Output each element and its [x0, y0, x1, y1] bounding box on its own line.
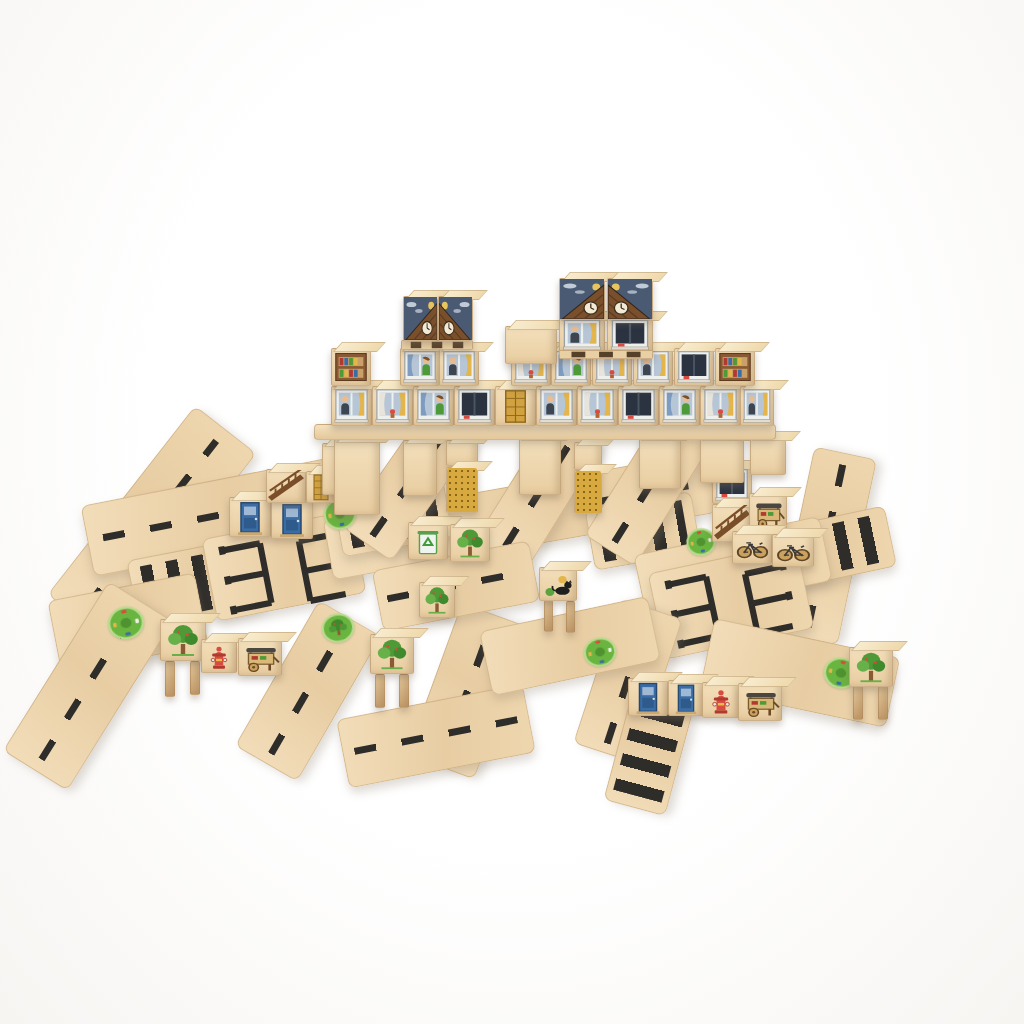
cat-print — [540, 568, 576, 600]
bike-print — [773, 535, 813, 566]
plain-print — [335, 440, 379, 514]
hydrant-print — [202, 640, 236, 672]
plain-print — [701, 438, 743, 482]
mid-tower-top — [505, 326, 557, 364]
roofL-print — [560, 279, 604, 319]
second-row-shelf-2 — [715, 348, 755, 386]
second-row-window-2 — [439, 348, 479, 386]
door-blue-print — [272, 500, 312, 538]
tree-print — [451, 525, 489, 561]
block-door-blue-2 — [271, 499, 313, 539]
stool-center-leg-2 — [399, 674, 409, 708]
tree-print — [420, 583, 454, 617]
pallet-print — [402, 341, 472, 349]
honeycomb-print — [447, 468, 477, 512]
stool-right-leg-2 — [878, 686, 888, 720]
win-man-print — [332, 387, 371, 425]
win-man-print — [560, 318, 604, 352]
cart-print — [739, 684, 781, 720]
win-woman-print — [660, 387, 699, 425]
block-door-blue-1 — [229, 497, 271, 537]
leg-print — [400, 675, 408, 707]
win-woman-print — [401, 349, 439, 385]
stool-right-leg-1 — [853, 686, 863, 720]
stool-left-leg-1 — [165, 661, 175, 697]
win-dark-print — [608, 318, 652, 352]
right-tower-roof-left — [559, 278, 605, 320]
stool-center-leg-1 — [375, 674, 385, 708]
base-row-window-3 — [413, 386, 454, 426]
door-gold-print — [496, 387, 535, 425]
pallet-print — [560, 351, 652, 358]
right-tower-window-1 — [559, 317, 605, 353]
base-row-door-gold — [495, 386, 536, 426]
right-tower-roof-right — [607, 278, 653, 320]
block-truss-1 — [266, 469, 306, 503]
win-dark-print — [619, 387, 658, 425]
plain-print — [640, 438, 680, 488]
leg-print — [879, 687, 887, 719]
block-cart-3 — [738, 683, 782, 721]
block-hydrant-2 — [702, 682, 740, 718]
roofR-print — [439, 297, 472, 340]
plain-print — [520, 438, 560, 494]
win-man-print — [537, 387, 576, 425]
left-tower-pallet — [401, 340, 473, 350]
hydrant-print — [703, 683, 739, 717]
stool-left-leg-2 — [190, 661, 200, 695]
base-row-window-8 — [659, 386, 700, 426]
pillar-7-honeycomb — [574, 470, 602, 514]
honeycomb-print — [575, 471, 601, 513]
block-tree-stool-right — [849, 647, 893, 687]
block-tree-stool-left — [160, 619, 206, 661]
leg-print — [545, 601, 552, 631]
pillar-9 — [700, 437, 744, 483]
door-blue-print — [629, 679, 667, 715]
block-door-blue-3 — [628, 678, 668, 716]
right-tower-pallet — [559, 350, 653, 359]
leg-print — [166, 662, 174, 696]
pillar-5 — [519, 437, 561, 495]
leg-print — [191, 662, 199, 694]
pillar-10 — [750, 437, 786, 475]
second-row-window-7 — [674, 348, 714, 386]
right-tower-window-2 — [607, 317, 653, 353]
plain-print — [506, 327, 556, 363]
roofL-print — [404, 297, 437, 340]
block-door-blue-4 — [668, 680, 704, 716]
tree-print — [371, 635, 413, 673]
base-row-window-1 — [331, 386, 372, 426]
cart-print — [239, 639, 281, 675]
shelf-print — [332, 349, 370, 385]
tree-print — [161, 620, 205, 660]
block-tree-2 — [419, 582, 455, 618]
bike-print — [733, 532, 771, 563]
plain-print — [404, 441, 436, 495]
win-dark-print — [675, 349, 713, 385]
door-blue-print — [230, 498, 270, 536]
block-cat — [539, 567, 577, 601]
road-dash-marking — [354, 716, 518, 754]
base-row-window-6 — [577, 386, 618, 426]
bridge-plank — [314, 424, 776, 440]
recycle-print — [409, 523, 447, 559]
leg-print — [854, 687, 862, 719]
road-bottom-center — [336, 684, 536, 789]
win-man-print — [440, 349, 478, 385]
win-woman-print — [414, 387, 453, 425]
road-bottomleft-diagonal — [3, 581, 173, 791]
block-tree-stool-center — [370, 634, 414, 674]
block-hydrant-1 — [201, 639, 237, 673]
pillar-1 — [334, 439, 380, 515]
win-curtain-print — [373, 387, 412, 425]
block-bike-1 — [732, 531, 772, 564]
win-dark-print — [455, 387, 494, 425]
block-tree-1 — [450, 524, 490, 562]
win-curtain-print — [578, 387, 617, 425]
base-row-window-5 — [536, 386, 577, 426]
win-man-print — [741, 387, 773, 425]
block-cart-2 — [238, 638, 282, 676]
shelf-print — [716, 349, 754, 385]
cat-stool-leg-1 — [544, 600, 553, 632]
base-row-window-4 — [454, 386, 495, 426]
leg-print — [567, 602, 574, 632]
plain-print — [751, 438, 785, 474]
block-recycle — [408, 522, 448, 560]
base-row-window-9 — [700, 386, 741, 426]
pillar-4-honeycomb — [446, 467, 478, 513]
block-bike-2 — [772, 534, 814, 567]
pillar-8 — [639, 437, 681, 489]
pillar-2 — [403, 440, 437, 496]
base-row-window-10 — [740, 386, 774, 426]
left-tower-roof-left — [403, 296, 438, 341]
base-row-window-7 — [618, 386, 659, 426]
door-blue-print — [669, 681, 703, 715]
left-tower-roof-right — [438, 296, 473, 341]
cat-stool-leg-2 — [566, 601, 575, 633]
roofR-print — [608, 279, 652, 319]
second-row-window-1 — [400, 348, 440, 386]
wooden-block-city-photo — [0, 0, 1024, 1024]
win-curtain-print — [701, 387, 740, 425]
leg-print — [376, 675, 384, 707]
truss-print — [267, 470, 305, 502]
second-row-shelf-1 — [331, 348, 371, 386]
base-row-window-2 — [372, 386, 413, 426]
tree-print — [850, 648, 892, 686]
